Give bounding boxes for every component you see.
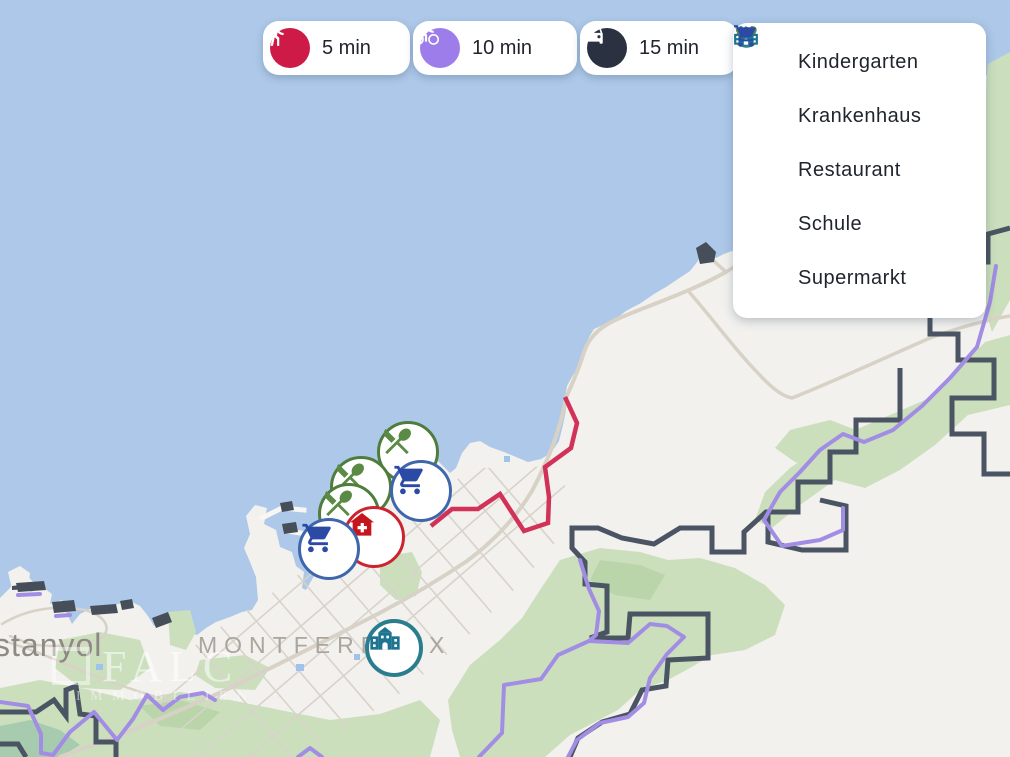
map-canvas[interactable]: stanyol MONTFERRUTX FALC IMMOBILIEN 5 mi… bbox=[0, 0, 1010, 757]
legend-item-restaurant[interactable]: Restaurant bbox=[753, 156, 986, 184]
poi-legend-panel: Kindergarten Krankenhaus Restaurant Schu… bbox=[733, 23, 986, 318]
teddy-bear-icon bbox=[753, 48, 781, 76]
crossed-utensils-icon bbox=[380, 424, 414, 458]
legend-label: Schule bbox=[798, 213, 862, 236]
chip-bike-10min[interactable]: 10 min bbox=[413, 21, 577, 75]
shopping-cart-icon bbox=[393, 463, 427, 497]
legend-label: Supermarkt bbox=[798, 267, 906, 290]
legend-item-supermarkt[interactable]: Supermarkt bbox=[753, 265, 986, 293]
shopping-cart-icon bbox=[301, 521, 335, 555]
legend-item-schule[interactable]: Schule bbox=[753, 211, 986, 239]
walk-time-label: 5 min bbox=[322, 37, 371, 60]
chip-car-15min[interactable]: 15 min bbox=[580, 21, 738, 75]
walk-icon bbox=[270, 28, 310, 68]
legend-label: Krankenhaus bbox=[798, 105, 921, 128]
village-label: stanyol bbox=[0, 627, 102, 663]
legend-item-kindergarten[interactable]: Kindergarten bbox=[753, 48, 986, 76]
legend-label: Kindergarten bbox=[798, 51, 919, 74]
marker-supermarkt[interactable] bbox=[390, 460, 452, 522]
crossed-utensils-icon bbox=[753, 156, 781, 184]
car-icon bbox=[587, 28, 627, 68]
legend-label: Restaurant bbox=[798, 159, 901, 182]
school-building-icon bbox=[753, 211, 781, 239]
chip-walk-5min[interactable]: 5 min bbox=[263, 21, 410, 75]
legend-item-krankenhaus[interactable]: Krankenhaus bbox=[753, 102, 986, 130]
shopping-cart-icon bbox=[753, 265, 781, 293]
marker-schule[interactable] bbox=[365, 619, 423, 677]
hospital-house-icon bbox=[753, 102, 781, 130]
school-building-icon bbox=[369, 623, 401, 655]
bike-time-label: 10 min bbox=[472, 37, 532, 60]
marker-supermarkt[interactable] bbox=[298, 518, 360, 580]
bike-icon bbox=[420, 28, 460, 68]
car-time-label: 15 min bbox=[639, 37, 699, 60]
